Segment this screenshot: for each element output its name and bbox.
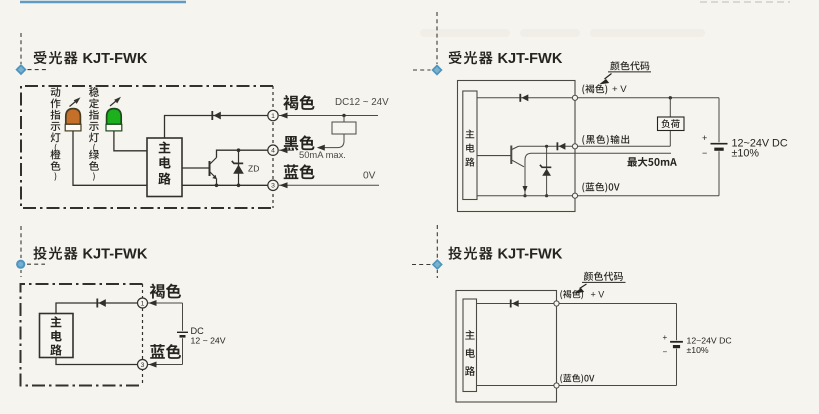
svg-text:KJT-FWK: KJT-FWK: [498, 247, 563, 263]
svg-text:KJT-FWK: KJT-FWK: [498, 51, 563, 67]
svg-text:1: 1: [271, 113, 275, 120]
svg-text:50mA max.: 50mA max.: [299, 149, 346, 160]
svg-text:+ V: + V: [591, 290, 605, 300]
svg-text:+: +: [663, 333, 668, 342]
svg-text:+ V: + V: [612, 84, 627, 95]
svg-text:12 ~ 24V: 12 ~ 24V: [191, 336, 226, 346]
svg-text:±10%: ±10%: [687, 345, 709, 355]
svg-text:KJT-FWK: KJT-FWK: [83, 51, 148, 67]
svg-text:ZD: ZD: [248, 164, 259, 174]
svg-text:4: 4: [271, 148, 275, 155]
svg-text:KJT-FWK: KJT-FWK: [83, 247, 148, 263]
svg-text:3: 3: [141, 362, 145, 369]
svg-text:±10%: ±10%: [732, 147, 760, 159]
svg-text:12~24V DC: 12~24V DC: [687, 336, 732, 346]
svg-text:−: −: [663, 348, 668, 357]
svg-text:−: −: [702, 148, 707, 158]
svg-text:3: 3: [271, 183, 275, 190]
svg-text:DC: DC: [191, 326, 205, 336]
svg-text:0V: 0V: [363, 171, 376, 182]
svg-text:+: +: [702, 133, 707, 143]
svg-text:DC12 ~ 24V: DC12 ~ 24V: [335, 97, 389, 108]
svg-text:1: 1: [141, 300, 145, 307]
